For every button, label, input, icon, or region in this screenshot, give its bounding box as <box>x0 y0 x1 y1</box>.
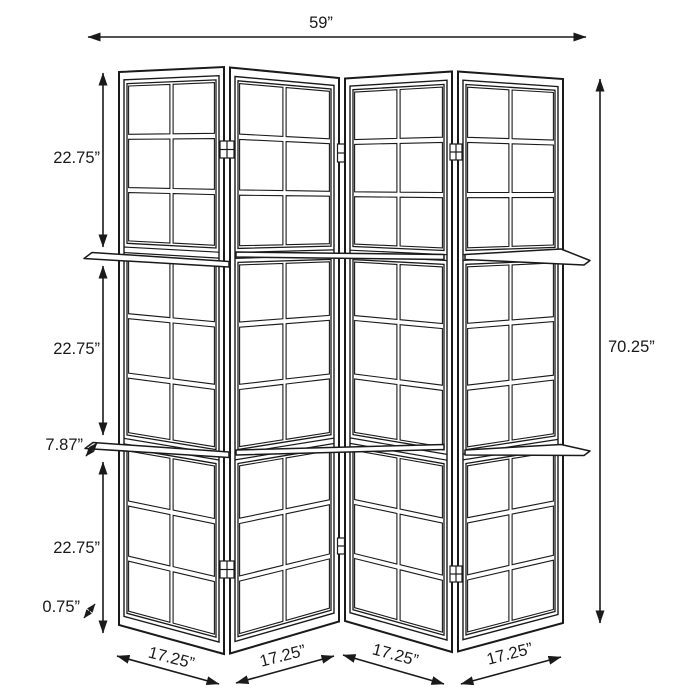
hinge <box>338 144 345 162</box>
dim-label-shelf-depth: 7.87” <box>45 436 83 454</box>
hinge <box>220 141 234 158</box>
folding-screen-dimension-diagram: 59” 70.25” 22.75” 22.75” 22.75” 7.87” <box>0 0 700 700</box>
hinge <box>450 144 462 160</box>
screen-drawing <box>84 67 590 654</box>
dim-label-frame-thickness: 0.75” <box>42 598 80 616</box>
panel-outer-frame <box>345 72 452 653</box>
dim-label-panel-width-4: 17.25” <box>485 640 535 669</box>
panel-1 <box>119 67 224 654</box>
dim-section-middle: 22.75” <box>53 266 103 435</box>
dim-label-section-middle: 22.75” <box>53 340 100 358</box>
hinge <box>220 561 234 578</box>
panel-3 <box>345 72 452 653</box>
dim-overall-height: 70.25” <box>600 79 655 623</box>
panel-outer-frame <box>458 72 563 652</box>
hinge <box>450 566 462 582</box>
dim-label-panel-width-2: 17.25” <box>258 642 308 671</box>
dim-overall-width: 59” <box>88 14 586 37</box>
dim-arrow-frame-thickness <box>84 604 95 618</box>
dim-panel-width-3: 17.25” <box>343 640 444 684</box>
dim-panel-width-1: 17.25” <box>117 644 219 684</box>
panel-2 <box>230 68 339 654</box>
panel-outer-frame <box>119 67 224 654</box>
diagram-canvas: 59” 70.25” 22.75” 22.75” 22.75” 7.87” <box>0 0 700 700</box>
dim-label-section-bottom: 22.75” <box>53 539 100 557</box>
panel-4 <box>458 72 563 652</box>
panel-outer-frame <box>230 68 339 654</box>
dim-label-panel-width-1: 17.25” <box>146 644 196 673</box>
hinge <box>338 538 345 554</box>
dim-section-top: 22.75” <box>53 73 103 247</box>
dim-frame-thickness: 0.75” <box>42 598 95 618</box>
dim-label-overall-width: 59” <box>309 14 333 32</box>
dim-label-overall-height: 70.25” <box>608 338 655 356</box>
dim-label-section-top: 22.75” <box>53 149 100 167</box>
